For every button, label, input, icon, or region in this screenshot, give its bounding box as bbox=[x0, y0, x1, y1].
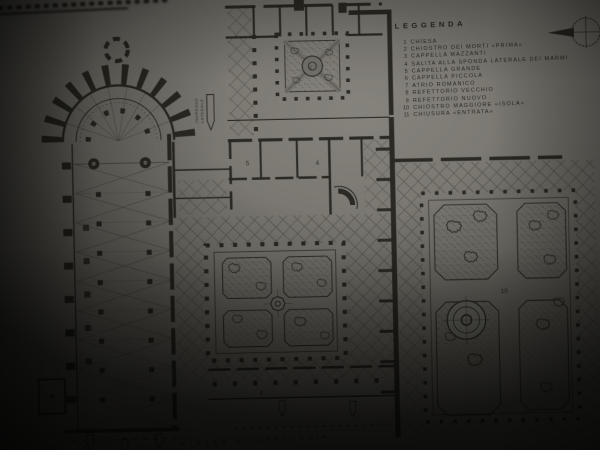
drawing-sheet: 2 4 5 8 10 INGRESSO LATERALE LEGGENDA 1C… bbox=[0, 0, 600, 450]
church-plan bbox=[31, 37, 191, 450]
legend-item-number: 11 bbox=[398, 112, 409, 120]
side-entrance-arrow bbox=[207, 94, 215, 130]
entrance-note: INGRESSO LATERALE bbox=[194, 98, 205, 124]
room-number: 4 bbox=[316, 161, 320, 167]
room-number: 8 bbox=[260, 391, 264, 397]
facade-entrance-arrows bbox=[87, 434, 162, 450]
legend: LEGGENDA 1CHIESA 2CHIOSTRO DEI MORTI «PR… bbox=[394, 14, 596, 120]
room-number: 5 bbox=[246, 162, 250, 168]
photo-of-floor-plan: 2 4 5 8 10 INGRESSO LATERALE LEGGENDA 1C… bbox=[0, 0, 600, 450]
great-cloister bbox=[382, 113, 600, 437]
sacristy-rooms bbox=[173, 141, 231, 218]
room-number: 10 bbox=[501, 288, 509, 295]
middle-cloister bbox=[175, 213, 395, 381]
entrance-note-line2: LATERALE bbox=[199, 99, 205, 123]
stair-curve bbox=[338, 191, 352, 205]
